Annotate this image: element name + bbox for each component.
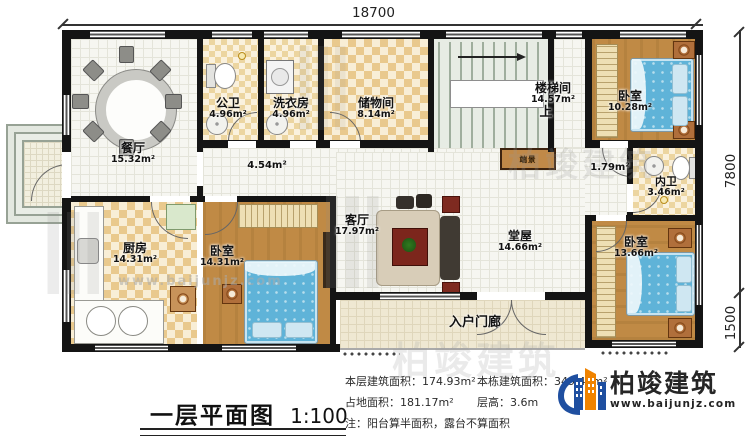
pillow [676,285,692,312]
wardrobe [238,204,318,228]
room-label-public-bath: 公卫4.96m² [209,97,247,121]
note-line: 注：阳台算半面积，露台不算面积 [345,414,510,435]
window [612,341,676,347]
dining-chair [72,94,89,109]
pillow [676,256,692,283]
drawing-scale: 1:100 [290,404,348,428]
wall-segment [545,292,592,300]
wall-segment [585,39,592,148]
pillow [672,96,688,126]
window [90,31,165,38]
dining-chair [119,46,134,63]
window [264,31,308,38]
room-label-bedroom-s: 卧室14.31m² [200,245,244,269]
dining-chair [165,94,182,109]
stair-arrow-head [517,53,526,61]
drawing-title-text: 一层平面图 [150,403,275,429]
room-label-laundry: 洗衣房4.96m² [272,97,310,121]
room-label-bedroom-se: 卧室13.66m² [614,236,658,260]
drawing-title: 一层平面图 1:100 [150,396,348,430]
door-opening [290,141,316,148]
stair-landing [450,80,544,108]
up-label: 上 [539,106,552,121]
door-opening [205,196,237,202]
plant-icon [402,238,416,252]
area-label-corridor: 4.54m² [247,160,286,171]
room-label-main-hall: 堂屋14.66m² [498,230,542,254]
stove [170,286,196,312]
room-label-living: 客厅17.97m² [335,214,379,238]
window [222,345,296,351]
dimension-line-right [739,30,741,348]
door-opening [228,141,256,148]
watermark-brand-text: 柏竣建筑 [508,138,656,186]
toilet-icon [214,63,236,89]
dimension-depth-main-label: 7800 [723,141,739,201]
washer-drum-icon [271,68,289,86]
door-opening [627,184,633,212]
pillow [252,322,282,338]
room-label-stairwell: 楼梯间14.57m² [531,82,575,106]
nightstand [673,41,695,59]
armchair [416,194,432,208]
door-opening [330,141,360,148]
window [63,95,70,135]
watermark-logo-icon [318,196,384,288]
window [620,31,686,38]
bed-sheet-fold [628,253,642,313]
window [380,293,460,300]
brand-logo-icon [556,366,608,416]
room-label-storage: 储物间8.14m² [357,97,395,121]
porch-dots-right [600,350,668,357]
window [446,31,542,38]
watermark-site-text: www.baijunjz.com [118,274,283,289]
wall-segment [428,39,434,152]
armchair [396,196,414,209]
brand-logo [556,366,608,420]
window [95,345,168,351]
nightstand [668,228,692,248]
dimension-width-label: 18700 [352,5,395,21]
kitchen-sink-basin [118,306,148,336]
wall-segment [585,221,592,348]
side-door-opening [62,152,71,198]
kitchen-sink-basin [86,306,116,336]
window [696,225,702,305]
wall-segment [197,30,203,152]
room-label-dining: 餐厅15.32m² [111,142,155,166]
stair-arrow-line [458,56,518,58]
window [342,31,420,38]
floor-plan-canvas: 端景 餐厅15.32m² 公卫4.96m² 洗衣房4.96m [0,0,750,442]
nightstand [668,318,692,338]
side-table [442,196,460,213]
pillow [285,322,313,338]
brand-block: 柏竣建筑 www.baijunjz.com [610,370,736,410]
pillow [672,64,688,94]
room-label-kitchen: 厨房14.31m² [113,242,157,266]
window [556,31,582,38]
room-label-inner-bath: 内卫3.46m² [647,176,685,199]
wall-segment [258,39,264,148]
door-opening [596,215,626,221]
chaise [440,216,460,280]
window [696,55,702,125]
window [212,31,252,38]
brand-site: www.baijunjz.com [610,398,736,410]
dimension-line-top [62,24,703,26]
drain-icon [238,52,246,60]
title-underline [140,428,346,436]
room-label-porch: 入户门廊 [449,316,501,331]
watermark-logo-icon [40,212,104,294]
brand-name: 柏竣建筑 [610,370,736,398]
door-opening [150,196,190,202]
dimension-depth-porch-label: 1500 [723,293,739,353]
room-label-bedroom-ne: 卧室10.28m² [608,90,652,114]
sofa-set [374,194,464,300]
area-label-hallway: 1.79m² [590,162,629,173]
